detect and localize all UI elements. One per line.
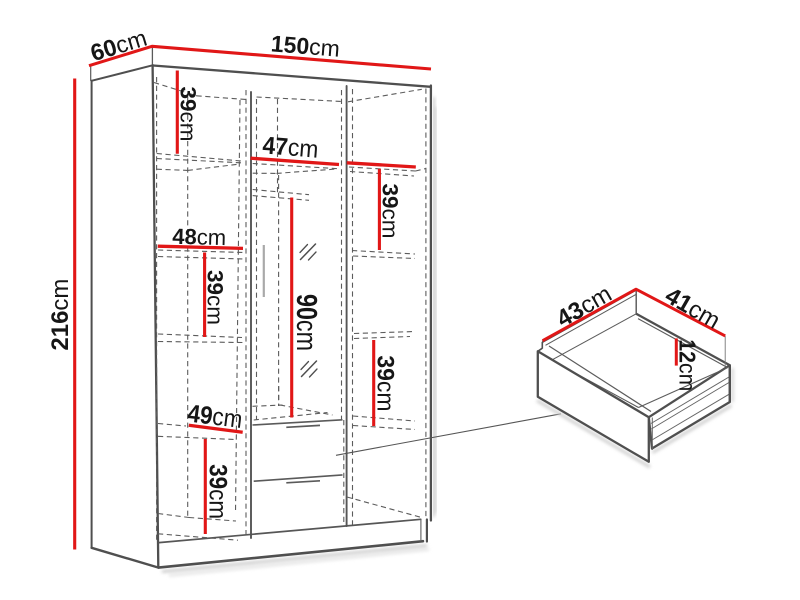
- svg-text:47cm: 47cm: [262, 132, 320, 163]
- svg-text:150cm: 150cm: [270, 30, 341, 61]
- svg-text:39cm: 39cm: [175, 86, 200, 141]
- svg-text:48cm: 48cm: [172, 224, 226, 250]
- svg-text:12cm: 12cm: [674, 339, 700, 391]
- svg-text:90cm: 90cm: [290, 294, 322, 351]
- svg-text:39cm: 39cm: [203, 270, 228, 325]
- svg-text:39cm: 39cm: [204, 464, 232, 519]
- svg-text:39cm: 39cm: [378, 183, 403, 238]
- svg-text:39cm: 39cm: [372, 355, 399, 411]
- svg-text:216cm: 216cm: [47, 279, 74, 351]
